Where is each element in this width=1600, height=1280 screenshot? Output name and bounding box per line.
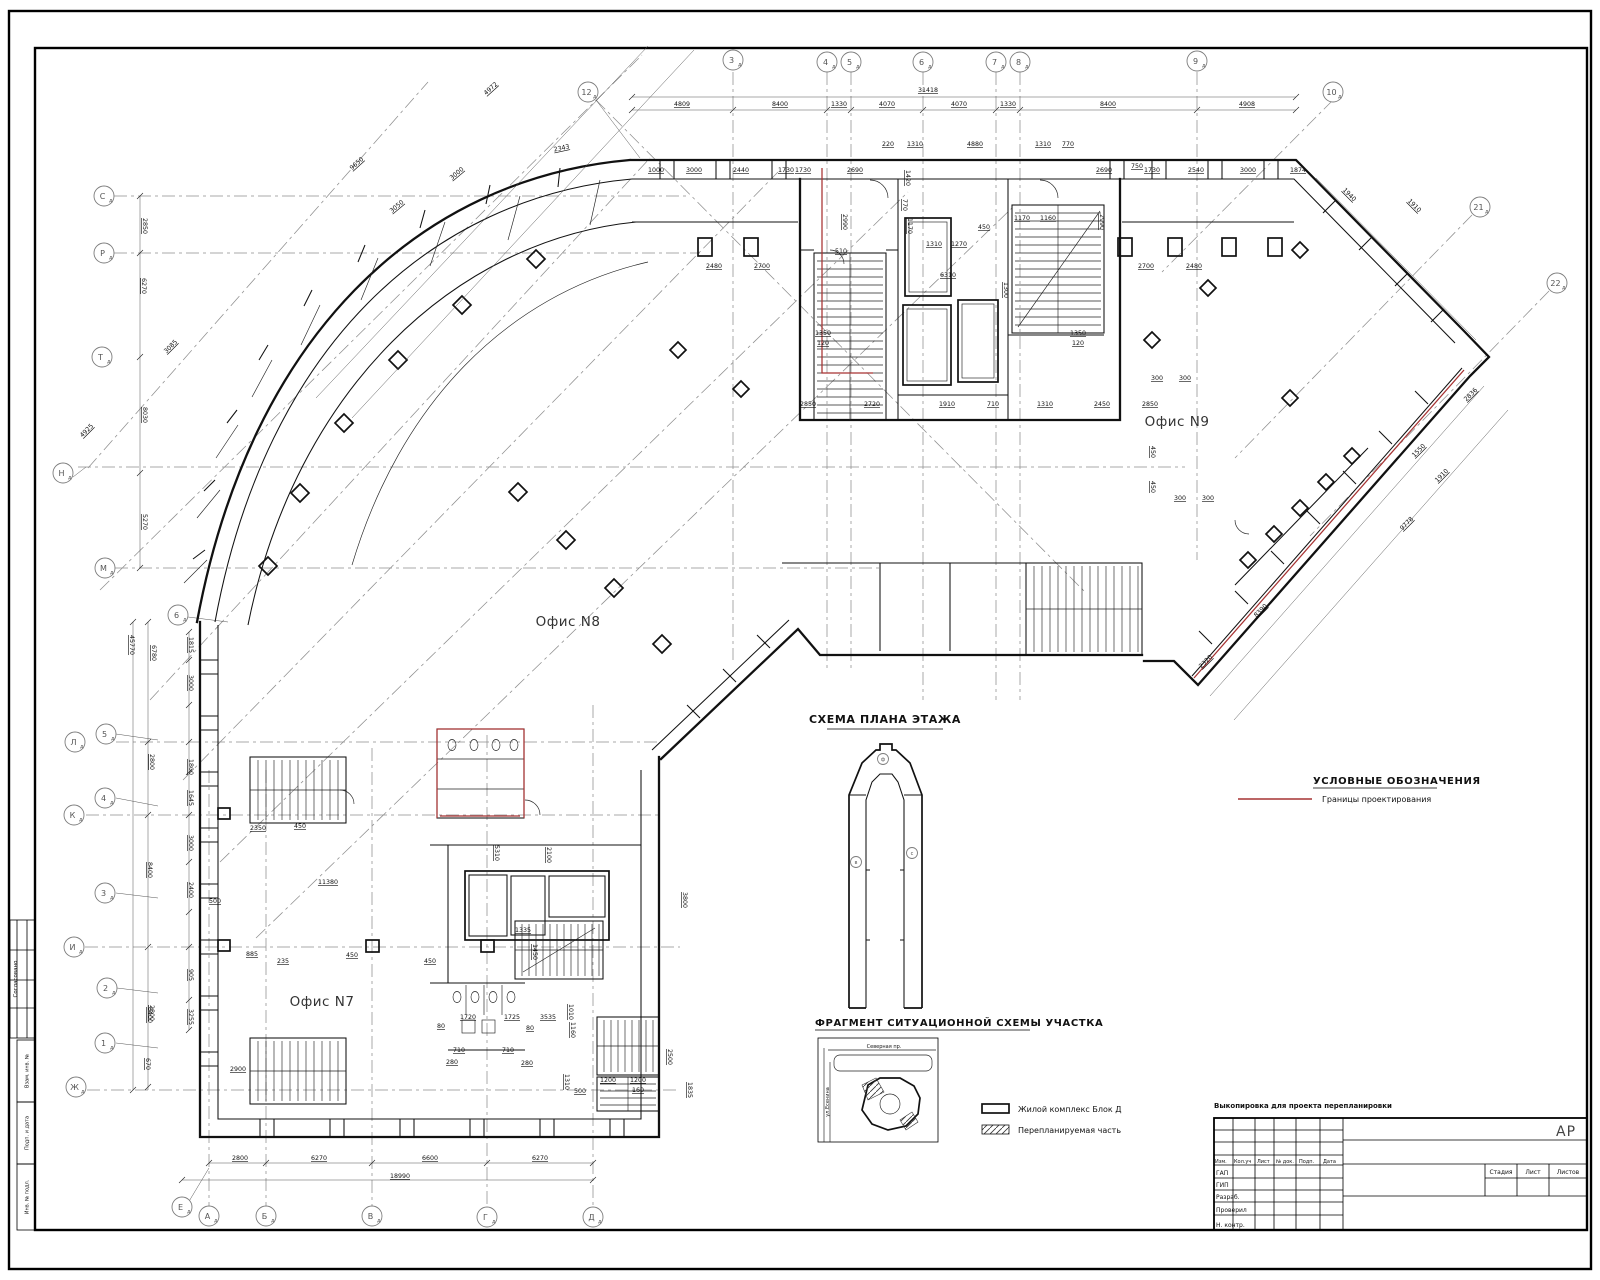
grid-bubble-label: Ж	[70, 1083, 79, 1092]
grid-bubble-label: 21	[1473, 203, 1483, 212]
dimension-label: 450	[1149, 446, 1156, 458]
grid-bubble-label: 4	[101, 794, 106, 803]
bubble-leader-line	[116, 1043, 158, 1048]
dimension-label: 4972	[483, 81, 500, 97]
column-diamond	[1344, 448, 1360, 464]
dimension-label: 6780	[150, 645, 157, 661]
wall-inner-lines	[215, 179, 1462, 1119]
column-pier	[218, 808, 230, 819]
dimension-label: 300	[1151, 375, 1163, 382]
dimension-label: 1200	[600, 1077, 616, 1084]
dimension-label: 2480	[1186, 263, 1202, 270]
dimension-label: 2440	[733, 167, 749, 174]
dimension-label: 3000	[449, 166, 466, 182]
grid-bubble-suffix: д	[1001, 64, 1005, 70]
dimension-label: 2690	[1096, 167, 1112, 174]
dimension-line	[1210, 386, 1484, 696]
grid-bubble-label: К	[70, 811, 76, 820]
dimension-label: 450	[1149, 481, 1156, 493]
grid-bubble-label: Т	[97, 353, 103, 362]
dimension-label: 1200	[630, 1077, 646, 1084]
legend-swatch-solid	[982, 1104, 1009, 1113]
grid-axis-line	[88, 82, 428, 468]
dimension-label: 2500	[666, 1049, 673, 1065]
dimension-label: 1815	[187, 637, 194, 653]
keyplan-shape: ф в с	[849, 744, 922, 1008]
grid-bubble-label: Г	[483, 1213, 488, 1222]
dimension-label: 280	[521, 1060, 533, 1067]
dimension-label: 1350	[815, 330, 831, 337]
grid-bubble-suffix: д	[214, 1218, 218, 1224]
wc-symbol	[507, 992, 515, 1003]
dimension-label: 1310	[1035, 141, 1051, 148]
title-block: Выкопировка для проекта перепланировки А…	[1214, 1102, 1587, 1230]
dimension-label: 4809	[674, 101, 690, 108]
dimension-label: 2700	[1138, 263, 1154, 270]
column-diamond	[733, 381, 749, 397]
keyplan-marker: с	[911, 851, 914, 857]
stamp-code: АР	[1556, 1124, 1576, 1140]
grid-bubble-suffix: д	[109, 255, 113, 261]
dimension-label: 2540	[1188, 167, 1204, 174]
grid-bubble-suffix: д	[112, 990, 116, 996]
dimension-label: 1725	[504, 1014, 520, 1021]
dimension-label: 120	[817, 340, 829, 347]
dimension-label: 5270	[141, 514, 148, 530]
column-diamond	[453, 296, 471, 314]
floor-plan-canvas: Согласовано Взам. инв. № Подп. и дата Ин…	[0, 0, 1600, 1280]
dimension-label: 1000	[648, 167, 664, 174]
grid-axis-line	[1235, 215, 1472, 458]
dimension-label: 1310	[926, 241, 942, 248]
dimension-label: 670	[144, 1058, 151, 1070]
tb-stage: Лист	[1525, 1169, 1541, 1176]
tb-row: Н. контр.	[1216, 1222, 1245, 1229]
office-n9-label: Офис N9	[1145, 414, 1210, 430]
dimension-label: 3050	[389, 199, 406, 215]
dimension-label: 1310	[1037, 401, 1053, 408]
tb-row: Разраб.	[1216, 1194, 1240, 1201]
grid-bubble-suffix: д	[1485, 209, 1489, 215]
dimension-label: 220	[882, 141, 894, 148]
grid-bubble-label: 3	[101, 889, 106, 898]
dimension-line	[316, 46, 648, 398]
office-n8-label: Офис N8	[536, 614, 601, 630]
side-stamp-label: Согласовано	[13, 960, 19, 998]
grid-bubble-label: 6	[174, 611, 179, 620]
dimension-label: 280	[446, 1059, 458, 1066]
grid-bubble-label: 6	[919, 58, 924, 67]
dimension-label: 8400	[1100, 101, 1116, 108]
drawing-sheet: Согласовано Взам. инв. № Подп. и дата Ин…	[0, 0, 1600, 1280]
tb-row: Проверил	[1216, 1207, 1247, 1214]
dimension-label: 4908	[1239, 101, 1255, 108]
grid-axis-line	[183, 172, 778, 780]
dimension-label: 1170	[906, 218, 913, 234]
grid-bubble-label: Д	[588, 1213, 594, 1222]
wc-symbol	[492, 740, 500, 751]
bubble-leader-line	[116, 798, 158, 806]
dimension-label: 1160	[1040, 215, 1056, 222]
grid-bubble-label: Е	[178, 1203, 183, 1212]
dimension-line	[1316, 178, 1476, 340]
site-map: Северная пр. ул.Есенина	[818, 1038, 938, 1142]
grid-bubble-suffix: д	[187, 1209, 191, 1215]
wc-symbol	[470, 740, 478, 751]
street-left-label: ул.Есенина	[825, 1087, 831, 1117]
side-stamp: Согласовано Взам. инв. № Подп. и дата Ин…	[10, 920, 35, 1230]
bubble-leader-line	[73, 467, 86, 477]
dimension-label: 300	[1179, 375, 1191, 382]
dimension-label: 2800	[148, 1005, 155, 1021]
grid-bubble-label: 5	[847, 58, 852, 67]
dimension-label: 1270	[951, 241, 967, 248]
dimension-label: 2850	[1142, 401, 1158, 408]
column-pier	[1268, 238, 1282, 256]
bubble-leader-line	[117, 988, 158, 993]
grid-bubble-label: И	[70, 943, 76, 952]
dimensions-layer: 3141848098400133040704070133084004908100…	[79, 46, 1508, 1183]
dimension-label: 3000	[1240, 167, 1256, 174]
dimension-label: 710	[987, 401, 999, 408]
inner-border	[35, 48, 1587, 1230]
window-piers-arc	[193, 168, 560, 559]
column-pier	[481, 940, 494, 952]
side-stamp-label: Взам. инв. №	[25, 1053, 31, 1088]
grid-bubble-suffix: д	[183, 617, 187, 623]
window-piers-top	[660, 160, 1278, 179]
column-diamond	[509, 483, 527, 501]
dimension-label: 1335	[515, 927, 531, 934]
grid-bubble-label: 3	[729, 56, 734, 65]
column-diamond	[605, 579, 623, 597]
dimension-label: 450	[346, 952, 358, 959]
grid-bubble-suffix: д	[1338, 94, 1342, 100]
dimension-label: 510	[835, 248, 847, 255]
dimension-label: 2850	[800, 401, 816, 408]
dimension-label: 885	[246, 951, 258, 958]
dimension-label: 8400	[146, 862, 153, 878]
dimension-label: 1310	[907, 141, 923, 148]
dimension-label: 6270	[311, 1155, 327, 1162]
dimension-label: 1720	[460, 1014, 476, 1021]
grid-bubble-label: 9	[1193, 57, 1198, 66]
tb-col: Лист	[1257, 1159, 1270, 1165]
dimension-label: 1300	[1002, 282, 1009, 298]
grid-bubble-label: 2	[103, 984, 108, 993]
site-legend-label: Перепланируемая часть	[1018, 1126, 1121, 1135]
grid-axis-line	[596, 100, 1085, 592]
tb-col: № док.	[1276, 1159, 1294, 1165]
grid-bubble-suffix: д	[110, 895, 114, 901]
dimension-label: 80	[437, 1023, 445, 1030]
grid-axis-line	[220, 192, 908, 862]
dimension-label: 1170	[1014, 215, 1030, 222]
grid-bubble-suffix: д	[110, 1045, 114, 1051]
bubble-leader-line	[188, 1168, 209, 1203]
grid-axis-line	[100, 55, 642, 590]
column-diamond	[1318, 474, 1334, 490]
dimension-label: 1310	[563, 1074, 570, 1090]
titleblock-note: Выкопировка для проекта перепланировки	[1214, 1102, 1392, 1110]
dimension-label: 2990	[1098, 214, 1105, 230]
dimension-label: 31418	[918, 87, 938, 94]
dimension-label: 8390	[1253, 603, 1269, 619]
keyplan-marker: ф	[881, 757, 885, 763]
site-legend-label: Жилой комплекс Блок Д	[1018, 1105, 1122, 1114]
design-boundary-line	[822, 168, 873, 373]
dimension-label: 3255	[187, 1009, 194, 1025]
column-diamond	[1200, 280, 1216, 296]
dimension-label: 4880	[967, 141, 983, 148]
dimension-label: 2400	[187, 882, 194, 898]
wall-outline	[197, 160, 1489, 1137]
grid-bubble-suffix: д	[738, 62, 742, 68]
side-stamp-label: Подп. и дата	[25, 1116, 31, 1150]
dimension-label: 160	[632, 1087, 644, 1094]
grid-bubble-suffix: д	[79, 949, 83, 955]
column-diamond	[291, 484, 309, 502]
dimension-label: 1645	[187, 790, 194, 806]
grid-bubble-suffix: д	[110, 570, 114, 576]
grid-bubble-label: С	[100, 192, 106, 201]
grid-bubble-suffix: д	[81, 1089, 85, 1095]
dimension-label: 1450	[531, 944, 538, 960]
design-boundary-line	[1194, 370, 1464, 678]
tb-stage: Стадия	[1489, 1169, 1512, 1176]
dimension-label: 235	[277, 958, 289, 965]
dimension-label: 1550	[1411, 443, 1427, 459]
dimension-label: 11380	[318, 879, 338, 886]
grid-bubble-label: М	[100, 564, 107, 573]
grid-bubble-suffix: д	[1202, 63, 1206, 69]
dimension-label: 1730	[1144, 167, 1160, 174]
dimension-label: 2343	[553, 143, 570, 153]
tb-col: Изм.	[1215, 1159, 1227, 1165]
column-pier	[218, 940, 230, 951]
grid-bubble-label: Р	[100, 249, 105, 258]
grid-bubble-suffix: д	[492, 1219, 496, 1225]
tb-col: Подп.	[1299, 1159, 1315, 1165]
dimension-label: 2990	[841, 214, 848, 230]
grid-bubble-suffix: д	[928, 64, 932, 70]
wc-symbol	[471, 992, 479, 1003]
dimension-label: 18990	[390, 1173, 410, 1180]
grid-bubble-label: 10	[1326, 88, 1336, 97]
dimension-label: 300	[1174, 495, 1186, 502]
dimension-label: 450	[424, 958, 436, 965]
dimension-label: 1910	[1434, 468, 1450, 484]
dimension-label: 3000	[686, 167, 702, 174]
legend-title: УСЛОВНЫЕ ОБОЗНАЧЕНИЯ	[1313, 776, 1481, 787]
column-diamond	[1292, 242, 1308, 258]
dimension-label: 750	[1131, 163, 1143, 170]
dimension-label: 450	[978, 224, 990, 231]
grid-bubble-suffix: д	[107, 359, 111, 365]
column-diamond	[557, 531, 575, 549]
grid-axis-line	[256, 208, 1012, 938]
grid-bubble-suffix: д	[1562, 285, 1566, 291]
wc-symbol	[489, 992, 497, 1003]
dimension-label: 3800	[681, 892, 688, 908]
grid-axis-line	[1310, 291, 1549, 536]
legend-swatch-hatch	[982, 1125, 1009, 1134]
dimension-label: 4925	[79, 423, 95, 439]
grid-bubble-suffix: д	[377, 1218, 381, 1224]
grid-bubbles-layer: 12д3д4д5д6д7д8д9д10д21д22дСдРдТдНдМд6дЛд…	[53, 50, 1567, 1227]
site-legend: Жилой комплекс Блок Д Перепланируемая ча…	[982, 1104, 1122, 1135]
grid-bubble-suffix: д	[80, 744, 84, 750]
grid-bubble-suffix: д	[110, 800, 114, 806]
dimension-label: 1910	[939, 401, 955, 408]
bubble-leader-line	[116, 893, 158, 898]
dimension-label: 770	[1062, 141, 1074, 148]
grid-bubble-label: 1	[101, 1039, 106, 1048]
grid-bubble-suffix: д	[109, 198, 113, 204]
dimension-label: 905	[187, 969, 194, 981]
dimension-label: 500	[209, 898, 221, 905]
grid-bubble-label: 22	[1550, 279, 1560, 288]
dimension-label: 1940	[1341, 187, 1357, 203]
building-walls-layer	[184, 160, 1489, 1137]
dimension-label: 45770	[128, 635, 135, 655]
dimension-label: 2800	[148, 754, 155, 770]
wc-symbol	[510, 740, 518, 751]
dimension-label: 8030	[141, 407, 148, 423]
dimension-label: 4070	[951, 101, 967, 108]
dimension-label: 6270	[532, 1155, 548, 1162]
column-diamond	[1144, 332, 1160, 348]
dimension-label: 770	[901, 199, 908, 211]
dimension-label: 4070	[879, 101, 895, 108]
bubble-leader-line	[188, 617, 228, 622]
dimension-label: 2900	[230, 1066, 246, 1073]
dimension-line	[352, 50, 694, 418]
tb-row: ГАП	[1216, 1170, 1228, 1177]
dimension-label: 80	[526, 1025, 534, 1032]
dimension-label: 3000	[187, 835, 194, 851]
tb-stage: Листов	[1557, 1169, 1580, 1176]
dimension-label: 300	[1202, 495, 1214, 502]
bubble-leader-line	[116, 734, 158, 740]
dimension-label: 2850	[141, 218, 148, 234]
tb-col: Кол.уч	[1234, 1159, 1251, 1165]
column-pier	[1168, 238, 1182, 256]
dimension-label: 1350	[1070, 330, 1086, 337]
grid-bubble-suffix: д	[856, 64, 860, 70]
grid-bubble-suffix: д	[832, 64, 836, 70]
dimension-label: 2350	[250, 825, 266, 832]
dimension-label: 1010	[567, 1004, 574, 1020]
street-top-label: Северная пр.	[867, 1044, 902, 1050]
office-n7-label: Офис N7	[290, 994, 355, 1010]
dimension-label: 5310	[493, 845, 500, 861]
dimension-label: 1730	[795, 167, 811, 174]
column-pier	[366, 940, 379, 952]
keyplan-marker: в	[855, 860, 858, 866]
grid-bubble-label: 7	[992, 58, 997, 67]
grid-bubble-suffix: д	[598, 1219, 602, 1225]
dimension-label: 2700	[754, 263, 770, 270]
column-diamond	[335, 414, 353, 432]
grid-bubble-suffix: д	[79, 817, 83, 823]
grid-bubble-label: Н	[58, 469, 64, 478]
keyplan-title: СХЕМА ПЛАНА ЭТАЖА	[809, 713, 961, 726]
dimension-label: 2480	[706, 263, 722, 270]
dimension-label: 1330	[831, 101, 847, 108]
column-pier	[1222, 238, 1236, 256]
grid-bubble-label: 5	[102, 730, 107, 739]
dimension-label: 2320	[1198, 654, 1214, 670]
annotation-layer: Офис N7 Офис N8 Офис N9 СХЕМА ПЛАНА ЭТАЖ…	[290, 414, 1587, 1230]
grid-bubble-label: 12	[581, 88, 591, 97]
column-diamond	[670, 342, 686, 358]
tb-row: ГИП	[1216, 1182, 1229, 1189]
dimension-label: 6600	[422, 1155, 438, 1162]
dimension-label: 8400	[772, 101, 788, 108]
grid-bubble-label: Л	[70, 738, 76, 747]
dimension-label: 710	[502, 1047, 514, 1054]
wc-symbol	[453, 992, 461, 1003]
grid-bubble-label: В	[368, 1212, 374, 1221]
grid-bubble-label: Б	[262, 1212, 268, 1221]
column-diamond	[1282, 390, 1298, 406]
dimension-label: 120	[1072, 340, 1084, 347]
grid-axis-line	[1162, 100, 1333, 272]
grid-bubble-suffix: д	[111, 736, 115, 742]
radial-partitions	[184, 180, 648, 583]
grid-bubble-suffix: д	[271, 1218, 275, 1224]
dimension-label: 1835	[686, 1082, 693, 1098]
dimension-label: 2800	[232, 1155, 248, 1162]
dimension-label: 3085	[163, 339, 179, 355]
window-piers-lower	[200, 660, 624, 1137]
dimension-line	[1234, 410, 1508, 720]
dimension-label: 1330	[1000, 101, 1016, 108]
dimension-label: 1874	[1290, 167, 1306, 174]
column-pier	[744, 238, 758, 256]
grid-bubble-label: 4	[823, 58, 828, 67]
dimension-label: 1800	[187, 759, 194, 775]
grid-bubble-suffix: д	[593, 94, 597, 100]
grid-bubble-label: А	[205, 1212, 211, 1221]
dimension-label: 710	[453, 1047, 465, 1054]
dimension-label: 2720	[864, 401, 880, 408]
legend-item-label: Границы проектирования	[1322, 795, 1431, 804]
grid-axes-layer	[73, 55, 1549, 1207]
grid-bubble-label: 8	[1016, 58, 1021, 67]
column-diamond	[653, 635, 671, 653]
dimension-label: 500	[574, 1088, 586, 1095]
dimension-label: 2450	[1094, 401, 1110, 408]
dimension-label: 3535	[540, 1014, 556, 1021]
grid-bubble-suffix: д	[1025, 64, 1029, 70]
dimension-label: 9650	[349, 156, 366, 172]
column-diamond	[1292, 500, 1308, 516]
dimension-label: 6310	[940, 272, 956, 279]
dimension-label: 1420	[904, 170, 911, 186]
fragment-title: ФРАГМЕНТ СИТУАЦИОННОЙ СХЕМЫ УЧАСТКА	[815, 1016, 1103, 1029]
tb-col: Дата	[1323, 1159, 1336, 1165]
dimension-label: 2100	[545, 847, 552, 863]
side-stamp-label: Инв. № подл.	[25, 1179, 31, 1214]
dimension-label: 1910	[1406, 198, 1422, 214]
dimension-label: 1730	[778, 167, 794, 174]
column-diamond	[389, 351, 407, 369]
dimension-label: 1160	[569, 1022, 576, 1038]
grid-bubble-suffix: д	[68, 475, 72, 481]
dimension-label: 6270	[140, 278, 147, 294]
